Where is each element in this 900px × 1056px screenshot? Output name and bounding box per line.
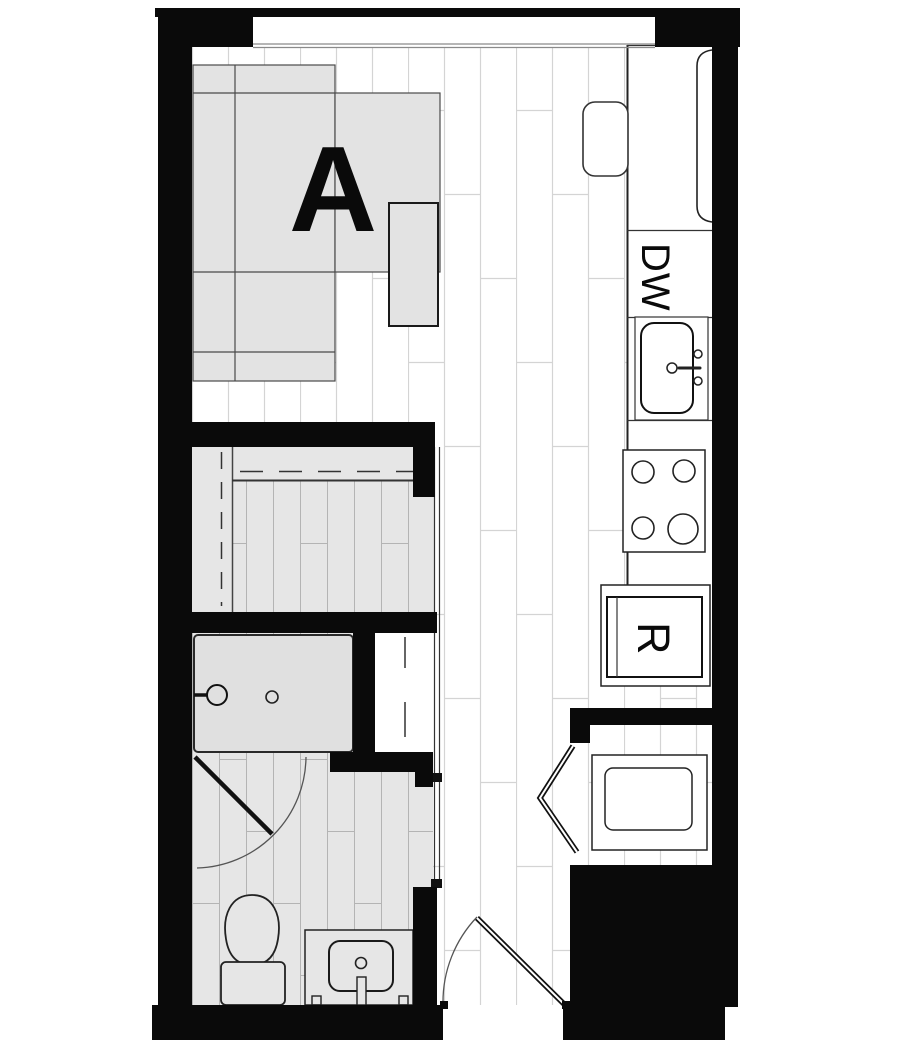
floor-plan: DW R [0,0,900,1051]
wall-laundry-north [570,708,713,725]
wall-bottom-right [563,1005,725,1040]
unit-label: A [289,121,377,257]
wall-closet-north [192,422,435,447]
entry-jamb-right [562,1001,570,1009]
closet [192,443,435,612]
window-mullion-1 [321,8,327,17]
closet-shelving [232,481,435,612]
wall-tub-stub [353,633,375,753]
washer-dryer-unit [605,768,692,830]
window-mullion-2 [575,8,581,17]
bathroom-niche [375,633,433,752]
dishwasher-label: DW [633,243,677,312]
window-glass [253,17,655,44]
refrigerator: R [601,585,710,686]
side-table [389,203,438,326]
toilet-tank [221,962,285,1005]
refrigerator-label: R [628,622,679,655]
wall-bottom-left [152,1005,443,1040]
wall-bath-mid-tab [415,772,433,787]
floor-plan-page: DW R [0,0,900,1051]
kitchen-sink [635,317,708,420]
wall-bath-mid [330,752,433,772]
wall-bath-north [192,612,437,633]
window-mullion-3 [645,8,651,17]
bathtub [194,635,353,752]
toilet-bowl [225,895,279,965]
wall-laundry-tab [570,725,590,743]
dishwasher: DW [633,243,677,312]
wall-left [158,8,192,1040]
bathtub-faucet-icon [207,685,227,705]
wall-right [712,17,738,1007]
toilet [221,895,285,1005]
vanity-drain [357,977,366,1005]
entry-jamb-left [440,1001,448,1009]
pocket-door-cap-bottom [431,879,442,888]
counter-stool [583,102,628,176]
stove [623,450,705,552]
wall-shaft-block [570,865,725,1007]
wall-closet-stub [413,447,435,497]
wall-bath-southeast-stub [413,887,437,1007]
bathroom-vanity [305,930,413,1005]
